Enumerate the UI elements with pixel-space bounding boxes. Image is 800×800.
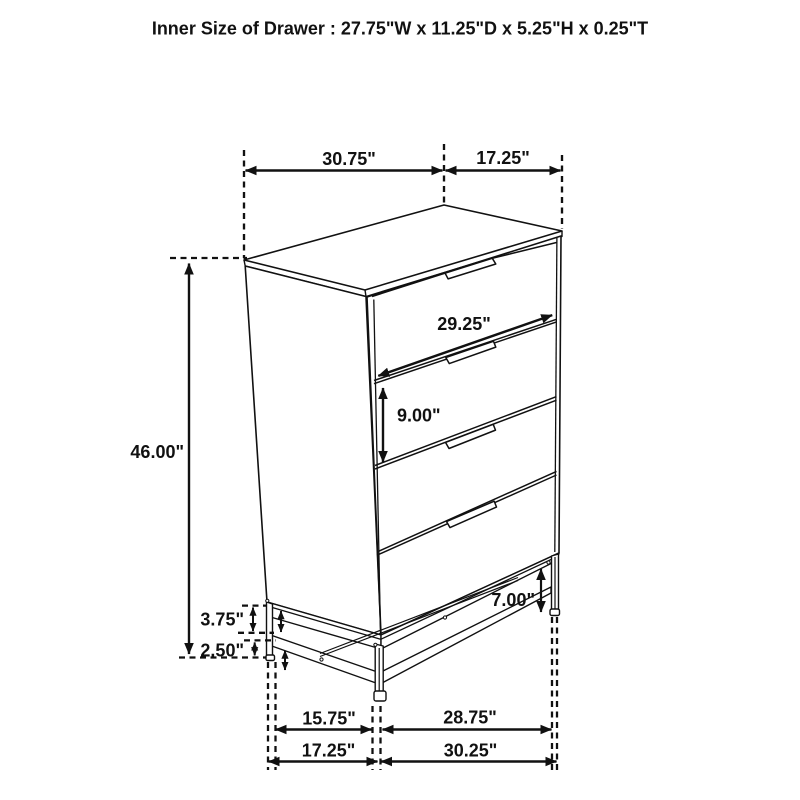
svg-text:2.50": 2.50" bbox=[200, 641, 244, 661]
svg-text:17.25": 17.25" bbox=[476, 148, 530, 168]
svg-text:29.25": 29.25" bbox=[437, 314, 491, 334]
svg-text:46.00": 46.00" bbox=[130, 442, 184, 462]
svg-text:17.25": 17.25" bbox=[302, 741, 356, 761]
svg-text:15.75": 15.75" bbox=[302, 709, 356, 729]
svg-text:9.00": 9.00" bbox=[397, 406, 441, 426]
svg-text:Inner Size of Drawer : 27.75"W: Inner Size of Drawer : 27.75"W x 11.25"D… bbox=[152, 19, 648, 39]
svg-text:7.00": 7.00" bbox=[491, 590, 535, 610]
svg-text:3.75": 3.75" bbox=[200, 610, 244, 630]
svg-text:30.75": 30.75" bbox=[322, 149, 376, 169]
svg-text:30.25": 30.25" bbox=[444, 741, 498, 761]
svg-text:28.75": 28.75" bbox=[443, 708, 497, 728]
